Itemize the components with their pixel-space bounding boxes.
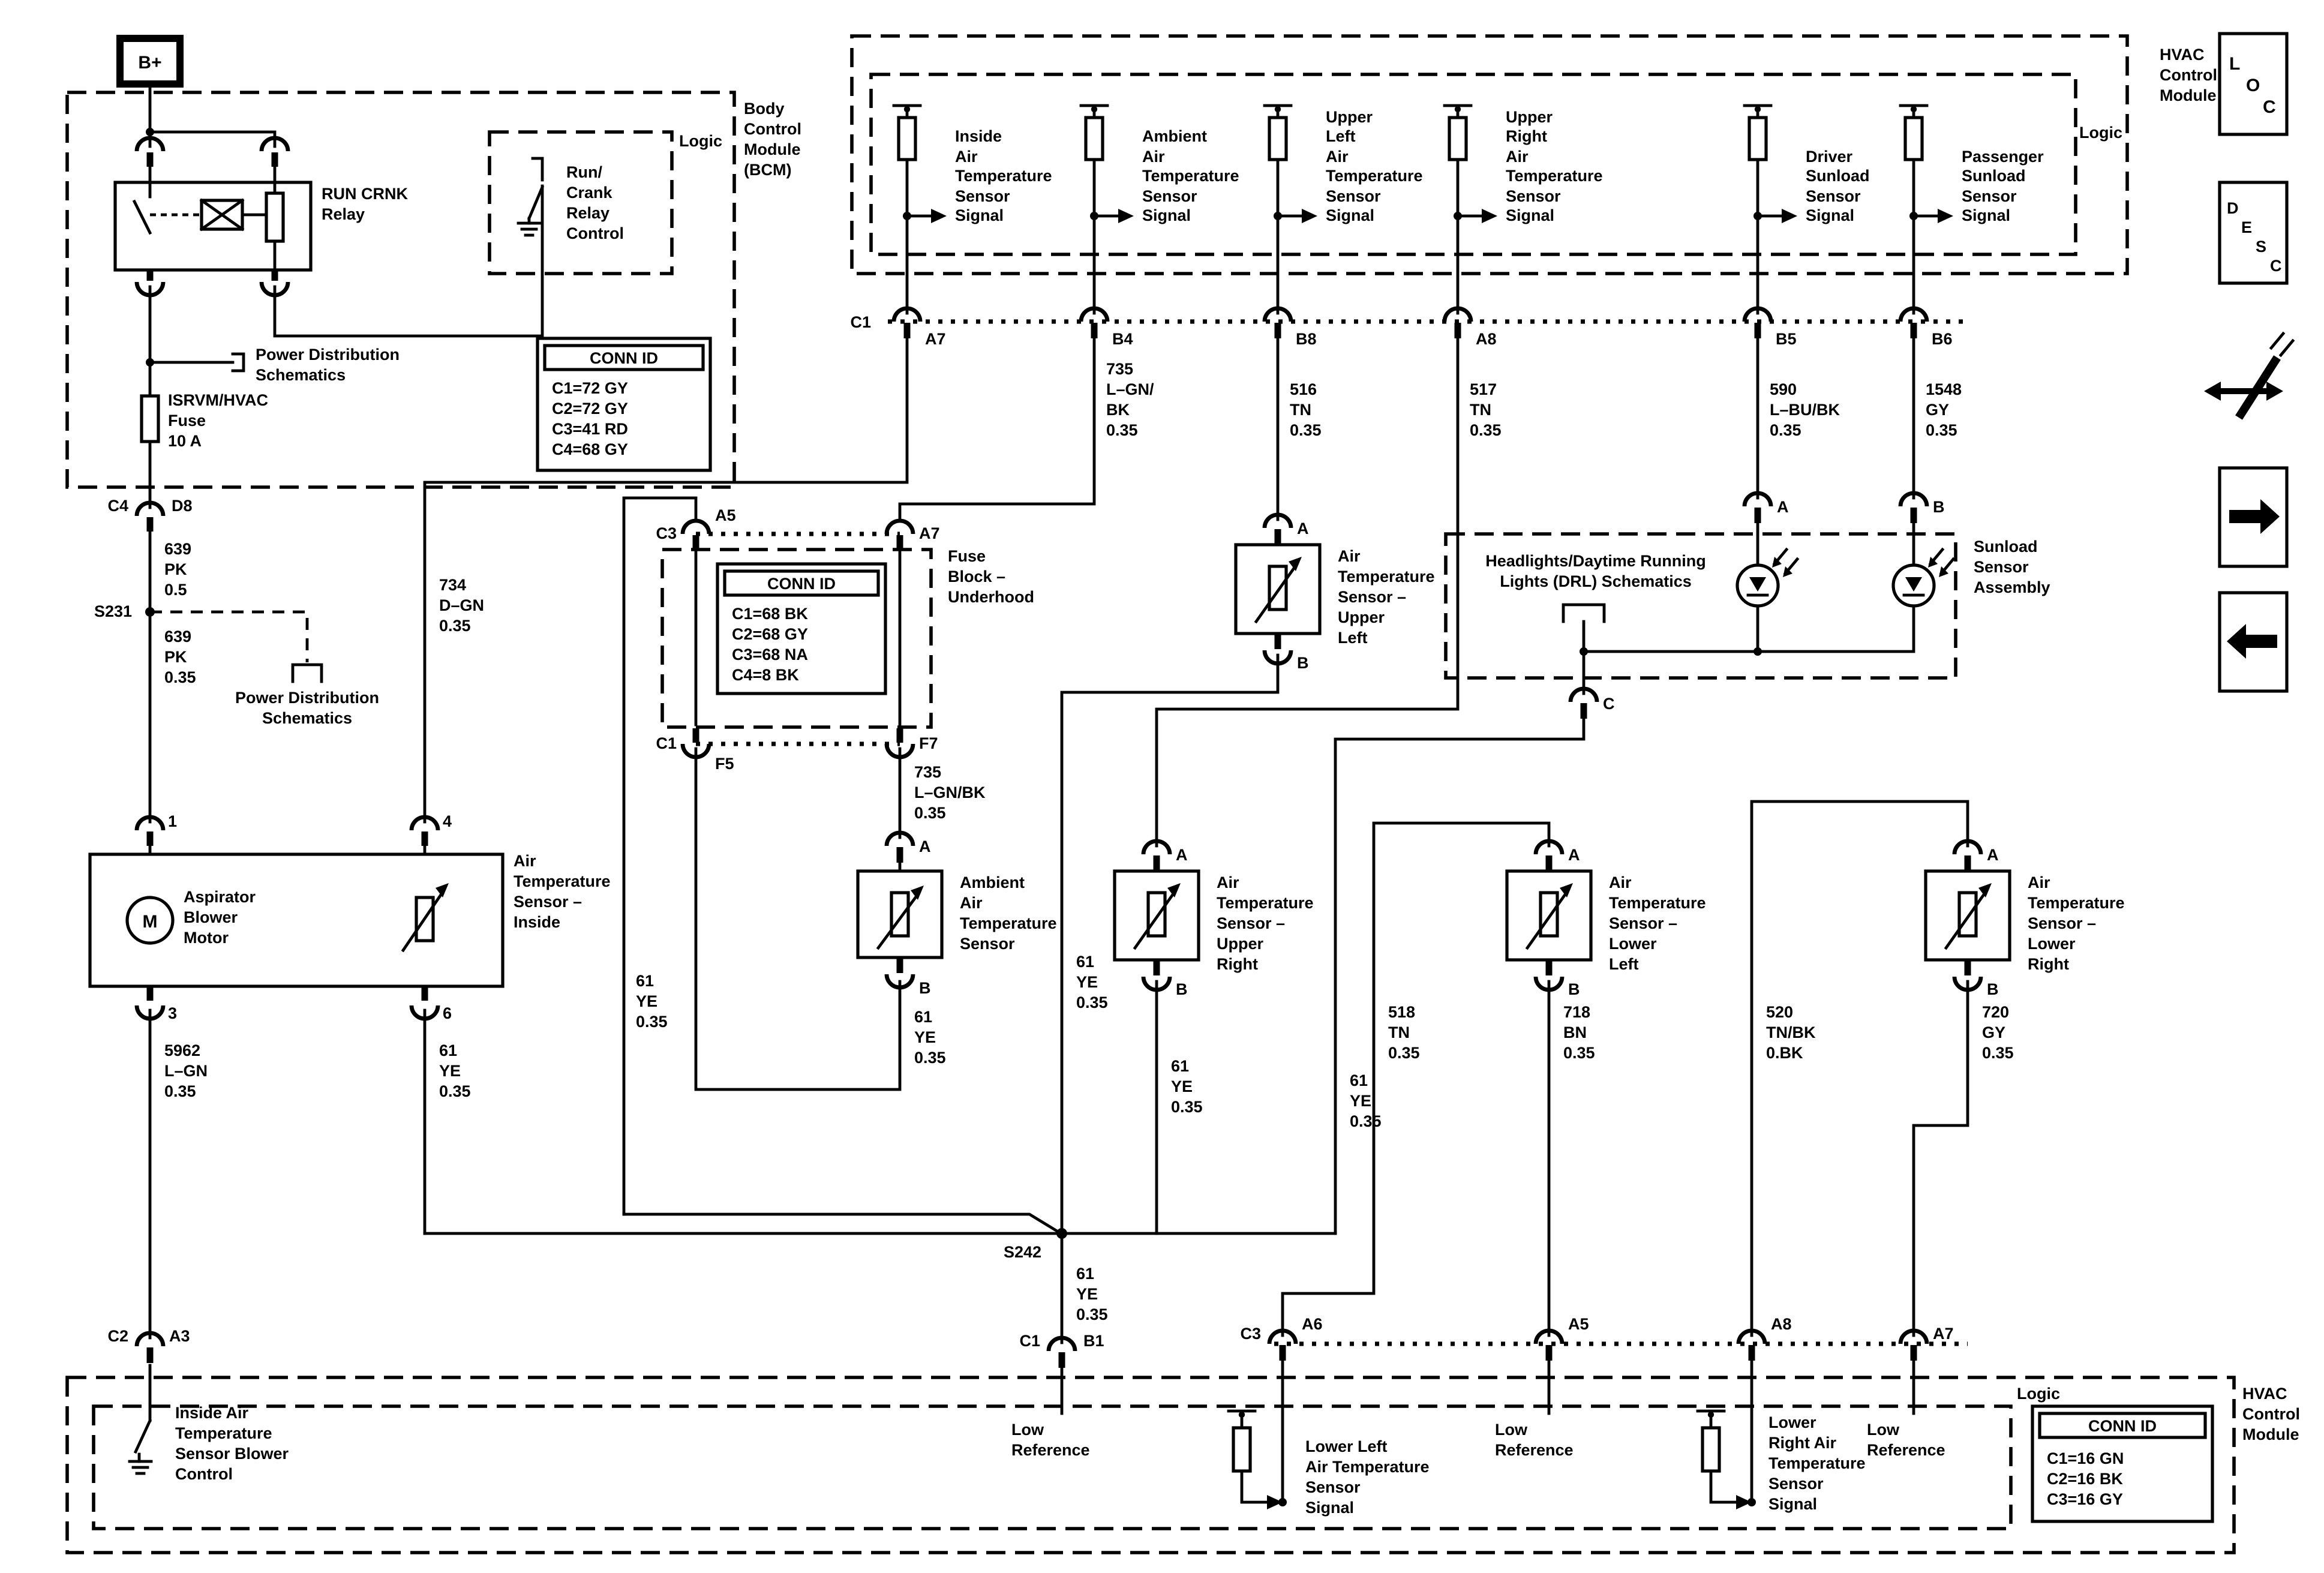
svg-text:E: E: [2241, 218, 2252, 236]
pin-6: 6: [443, 1004, 452, 1022]
left-wires: 639 PK 0.5 S231 Power Distribution Schem…: [94, 532, 379, 822]
pin-c3: C3: [1240, 1325, 1261, 1343]
svg-text:Right Air: Right Air: [1768, 1434, 1836, 1452]
svg-text:Sensor: Sensor: [955, 187, 1010, 205]
svg-text:Temperature: Temperature: [1506, 167, 1603, 185]
top-sensor-labels: Inside Air Temperature Sensor Signal Amb…: [955, 108, 2044, 224]
power-distribution-bracket2-icon: [293, 665, 322, 682]
bottom-logic-label: Logic: [2017, 1385, 2060, 1403]
svg-text:Air: Air: [960, 894, 983, 912]
splice-s242-label: S242: [1004, 1243, 1041, 1261]
relay-name: RUN CRNK: [322, 185, 408, 203]
svg-text:0.35: 0.35: [1563, 1044, 1595, 1062]
pin-c1f: C1: [656, 734, 677, 752]
isrvm-hvac-fuse-icon: [142, 396, 158, 442]
pin-c3: C3: [656, 524, 677, 542]
wire-label-61: 61: [636, 972, 654, 990]
svg-text:C: C: [2263, 97, 2276, 117]
pin-3: 3: [168, 1004, 177, 1022]
bcm-name: (BCM): [744, 161, 791, 179]
svg-text:Air: Air: [1326, 148, 1349, 166]
wire-label-61: 0.35: [636, 1013, 668, 1031]
wire-label-639: 0.5: [164, 581, 187, 599]
low-reference: Reference: [1867, 1441, 1945, 1459]
arrow-left-button[interactable]: [2220, 593, 2287, 691]
svg-text:Ambient: Ambient: [1142, 127, 1207, 145]
pin-b8: B8: [1296, 330, 1317, 348]
wire-label-639b: 0.35: [164, 668, 196, 686]
wire-label-590: 590: [1770, 380, 1797, 398]
wire-label-61: 0.35: [439, 1082, 471, 1100]
wire-label-639: PK: [164, 560, 187, 578]
svg-text:Control: Control: [175, 1465, 233, 1483]
svg-text:Temperature: Temperature: [1768, 1454, 1866, 1472]
wire-label-61: 0.35: [1350, 1112, 1382, 1130]
pin-4: 4: [443, 812, 452, 830]
svg-text:Temperature: Temperature: [1142, 167, 1239, 185]
run-crank-label: Control: [566, 224, 624, 242]
top-module-name: Control: [2160, 66, 2217, 84]
wire-label-639b: 639: [164, 628, 191, 646]
wire-label-61: 61: [1171, 1057, 1189, 1075]
svg-text:Upper: Upper: [1338, 608, 1385, 626]
bcm-conn-id-table: CONN ID C1=72 GY C2=72 GY C3=41 RD C4=68…: [538, 338, 710, 470]
svg-text:Temperature: Temperature: [1338, 568, 1435, 586]
run-crnk-relay-box: [115, 182, 311, 270]
pin-b: B: [1987, 980, 1999, 998]
aspirator-label: Motor: [184, 929, 229, 947]
svg-text:Signal: Signal: [1305, 1499, 1354, 1517]
splice-s242-bus: S242 61 YE 0.35 C1 B1: [425, 1214, 1335, 1368]
svg-text:Air: Air: [1338, 547, 1361, 565]
wire-518: [1283, 823, 1549, 1335]
passenger-photodiode-icon: [1893, 550, 1953, 606]
svg-text:Sensor: Sensor: [1806, 187, 1861, 205]
wire-label-639: 639: [164, 540, 191, 558]
ambient-air-temp-sensor: A B Ambient Air Temperature Sensor 61 YE…: [858, 833, 1057, 1067]
svg-text:C3=68 NA: C3=68 NA: [732, 646, 808, 664]
svg-text:518: 518: [1388, 1003, 1415, 1021]
svg-text:Temperature: Temperature: [955, 167, 1052, 185]
svg-text:Temperature: Temperature: [960, 914, 1057, 932]
wire-label-5962: L–GN: [164, 1062, 208, 1080]
top-sensor-branches: [894, 106, 1953, 313]
svg-text:Sensor: Sensor: [1768, 1475, 1824, 1493]
power-distribution2-label: Schematics: [262, 709, 352, 727]
fuse-block-name: Fuse: [948, 547, 986, 565]
svg-text:Sensor: Sensor: [1142, 187, 1197, 205]
run-crank-label: Relay: [566, 204, 609, 222]
svg-text:Right: Right: [1217, 955, 1258, 973]
air-temp-sensor-upper-right: A B Air Temperature Sensor – Upper Right…: [1115, 340, 1458, 1233]
wire-label-5962: 0.35: [164, 1082, 196, 1100]
arrow-right-button[interactable]: [2220, 468, 2287, 566]
wrench-nav-icon[interactable]: [2204, 334, 2293, 418]
svg-text:C2=68 GY: C2=68 GY: [732, 625, 808, 643]
conn-id-row: C1=72 GY: [552, 379, 628, 397]
top-module-name: Module: [2160, 86, 2217, 104]
fuse-block-name: Underhood: [948, 588, 1034, 606]
pin-b4: B4: [1112, 330, 1133, 348]
wire-label-639b: PK: [164, 648, 187, 666]
fuse-label: ISRVM/HVAC: [168, 391, 268, 409]
svg-text:Sensor –: Sensor –: [1338, 588, 1406, 606]
air-temp-sensor-upper-left: A B Air Temperature Sensor – Upper Left …: [1062, 340, 1435, 1229]
power-distribution2-label: Power Distribution: [235, 689, 379, 707]
air-temp-sensor-lower-left: 518 TN 0.35 A B Air Temperature Sensor –…: [1283, 823, 1706, 1335]
top-module-name: HVAC: [2160, 46, 2205, 64]
svg-text:Temperature: Temperature: [175, 1424, 272, 1442]
svg-text:CONN ID: CONN ID: [767, 575, 836, 593]
svg-text:Temperature: Temperature: [2028, 894, 2125, 912]
svg-text:Right: Right: [2028, 955, 2069, 973]
svg-text:Sensor –: Sensor –: [1609, 914, 1677, 932]
bcm-name: Module: [744, 140, 801, 158]
wire-label-516: TN: [1290, 401, 1311, 419]
wire-label-516: 516: [1290, 380, 1317, 398]
wire-61-a5-path: [624, 498, 696, 1214]
svg-text:BN: BN: [1563, 1023, 1587, 1041]
power-distribution-bracket-icon: [233, 354, 244, 371]
lower-right-signal-circuit: Lower Right Air Temperature Sensor Signa…: [1698, 1362, 1866, 1513]
svg-text:Air: Air: [2028, 873, 2050, 891]
motor-m: M: [143, 912, 158, 932]
drl-bracket-icon: [1563, 605, 1604, 622]
pin-a: A: [1987, 846, 1999, 864]
inside-sensor-label: Inside: [514, 913, 560, 931]
svg-text:Signal: Signal: [955, 206, 1004, 224]
fuse-label: Fuse: [168, 412, 206, 430]
wire-label-61: 61: [1350, 1071, 1368, 1089]
pin-a8: A8: [1476, 330, 1497, 348]
svg-text:0.BK: 0.BK: [1766, 1044, 1803, 1062]
wire-label-61: YE: [439, 1062, 461, 1080]
svg-text:Sunload: Sunload: [1962, 167, 2026, 185]
pin-a8: A8: [1771, 1315, 1792, 1333]
bottom-module-name: Module: [2242, 1425, 2299, 1443]
wire-label-61: YE: [636, 992, 657, 1010]
svg-text:O: O: [2246, 76, 2260, 95]
wire-735-feed: [900, 340, 1094, 521]
svg-text:Air: Air: [955, 148, 978, 166]
pin-label-d8: D8: [172, 497, 193, 515]
svg-text:Inside: Inside: [955, 127, 1002, 145]
wire-label-590: 0.35: [1770, 421, 1801, 439]
svg-text:Sunload: Sunload: [1806, 167, 1870, 185]
wire-label-735: 0.35: [1106, 421, 1138, 439]
wire-label-517: TN: [1470, 401, 1491, 419]
svg-text:C: C: [2270, 257, 2282, 275]
svg-text:TN: TN: [1388, 1023, 1410, 1041]
conn-id-header: CONN ID: [590, 349, 658, 367]
pin-c1: C1: [1019, 1332, 1040, 1350]
svg-text:520: 520: [1766, 1003, 1793, 1021]
inside-air-temp-sensor-icon: [403, 883, 449, 950]
wire-label-61: 0.35: [1076, 993, 1108, 1011]
svg-text:Air: Air: [1217, 873, 1239, 891]
lower-left-signal-circuit: Lower Left Air Temperature Sensor Signal: [1229, 1362, 1430, 1517]
svg-text:Air Temperature: Air Temperature: [1305, 1458, 1430, 1476]
wire-label-61: 61: [914, 1008, 932, 1026]
low-reference: Low: [1867, 1421, 1900, 1439]
pin-a7b: A7: [1933, 1325, 1954, 1343]
wire-label-61: 0.35: [1076, 1305, 1108, 1323]
sunload-sensor-assembly: A B Headlights/Daytime Running Lights (D…: [1335, 340, 2050, 1233]
svg-text:Lower: Lower: [2028, 935, 2076, 953]
bcm-section: B+ Body Control Module (BCM) Logic RUN C…: [67, 38, 801, 532]
svg-text:Lower Left: Lower Left: [1305, 1437, 1388, 1455]
svg-text:Signal: Signal: [1962, 206, 2010, 224]
relay-name: Relay: [322, 205, 365, 223]
conn-id-row: C3=41 RD: [552, 420, 628, 438]
wire-label-1548: 1548: [1926, 380, 1962, 398]
power-distribution-label: Schematics: [256, 366, 346, 384]
svg-text:Temperature: Temperature: [1217, 894, 1314, 912]
bottom-module-name: Control: [2242, 1405, 2300, 1423]
inside-sensor-label: Air: [514, 852, 536, 870]
svg-text:Right: Right: [1506, 127, 1547, 145]
svg-text:TN/BK: TN/BK: [1766, 1023, 1816, 1041]
bcm-dashed-box: [67, 92, 734, 487]
svg-text:L: L: [2229, 54, 2240, 74]
svg-text:Signal: Signal: [1506, 206, 1554, 224]
pin-a: A: [1568, 846, 1580, 864]
sunload-name: Sensor: [1974, 558, 2029, 576]
svg-text:C3=16 GY: C3=16 GY: [2047, 1490, 2123, 1508]
wire-label-735: BK: [1106, 401, 1130, 419]
wire-label-735b: L–GN/BK: [914, 784, 986, 801]
svg-text:Sensor Blower: Sensor Blower: [175, 1445, 289, 1463]
bcm-name: Body: [744, 100, 785, 118]
svg-text:Signal: Signal: [1142, 206, 1191, 224]
drl-label: Headlights/Daytime Running: [1485, 552, 1706, 570]
air-temp-sensor-lower-right: 520 TN/BK 0.BK A B Air Temperature Senso…: [1752, 801, 2125, 1335]
svg-text:Inside Air: Inside Air: [175, 1404, 249, 1422]
pin-a6: A6: [1302, 1315, 1323, 1333]
wire-label-61: 61: [1076, 1265, 1094, 1283]
loc-button[interactable]: L O C: [2220, 34, 2287, 134]
bottom-logic-box: [94, 1406, 2011, 1529]
inside-sensor-label: Temperature: [514, 872, 611, 890]
top-logic-label: Logic: [2079, 124, 2122, 142]
svg-text:Left: Left: [1338, 629, 1368, 647]
aspirator-label: Blower: [184, 908, 238, 926]
svg-text:S: S: [2256, 238, 2266, 256]
svg-text:Driver: Driver: [1806, 148, 1853, 166]
svg-text:Sensor: Sensor: [1962, 187, 2017, 205]
low-reference: Reference: [1011, 1441, 1090, 1459]
pin-f5: F5: [715, 755, 734, 773]
bcm-logic-label: Logic: [679, 132, 722, 150]
svg-text:0.35: 0.35: [1388, 1044, 1420, 1062]
splice-s231-label: S231: [94, 602, 132, 620]
svg-text:0.35: 0.35: [1982, 1044, 2014, 1062]
pin-b: B: [1297, 654, 1309, 672]
wire-label-734: D–GN: [439, 596, 484, 614]
run-crank-relay-control-icon: [518, 158, 542, 235]
top-hvac-module: Logic HVAC Control Module Inside Air Tem…: [850, 36, 2217, 439]
pin-f7: F7: [919, 734, 938, 752]
wire-label-735: L–GN/: [1106, 380, 1154, 398]
wire-61-f5-to-ambient-b: [696, 749, 900, 1089]
bottom-conn-id-table: CONN ID C1=16 GN C2=16 BK C3=16 GY: [2032, 1406, 2212, 1521]
run-crank-label: Crank: [566, 184, 613, 202]
b-plus-label: B+: [138, 53, 161, 73]
svg-text:Air: Air: [1609, 873, 1632, 891]
fuse-label: 10 A: [168, 432, 202, 450]
pin-a3: A3: [169, 1327, 190, 1345]
bcm-name: Control: [744, 120, 801, 138]
wire-label-734: 734: [439, 576, 466, 594]
svg-text:Sensor: Sensor: [960, 935, 1015, 953]
top-module-box: [852, 36, 2127, 274]
relay-resistor-icon: [266, 193, 283, 241]
sunload-name: Sunload: [1974, 538, 2038, 556]
wire-label-61: 0.35: [914, 1049, 946, 1067]
wire-label-1548: 0.35: [1926, 421, 1957, 439]
inside-sensor-label: Sensor –: [514, 893, 582, 911]
pin-c2: C2: [107, 1327, 128, 1345]
conn-id-row: C4=68 GY: [552, 440, 628, 458]
wire-label-517: 0.35: [1470, 421, 1502, 439]
wire-label-61: 61: [439, 1041, 457, 1059]
wire-label-61: YE: [1350, 1092, 1371, 1110]
svg-text:GY: GY: [1982, 1023, 2005, 1041]
pin-b: B: [1176, 980, 1188, 998]
conn-id-row: C2=72 GY: [552, 400, 628, 418]
power-distribution-label: Power Distribution: [256, 346, 400, 364]
pin-c: C: [1603, 695, 1615, 713]
pin-a: A: [1777, 498, 1789, 516]
wire-label-735b: 0.35: [914, 804, 946, 822]
wire-label-61: YE: [1076, 973, 1098, 991]
aspirator-blower-motor: 1 4 M Aspirator Blower Motor Air Tempera…: [90, 812, 611, 1338]
svg-text:D: D: [2227, 199, 2239, 217]
pin-a7: A7: [925, 330, 946, 348]
pin-a7f: A7: [919, 524, 940, 542]
svg-text:C1=68 BK: C1=68 BK: [732, 605, 808, 623]
bottom-module-box: [67, 1377, 2234, 1553]
svg-text:718: 718: [1563, 1003, 1590, 1021]
wire-720: [1914, 981, 1968, 1335]
svg-text:Upper: Upper: [1506, 108, 1553, 126]
svg-text:Ambient: Ambient: [960, 873, 1025, 891]
svg-text:C2=16 BK: C2=16 BK: [2047, 1470, 2123, 1488]
svg-text:Air: Air: [1142, 148, 1165, 166]
run-crank-label: Run/: [566, 163, 602, 181]
wire-label-61: YE: [914, 1028, 936, 1046]
svg-text:C4=8 BK: C4=8 BK: [732, 666, 799, 684]
pin-a5: A5: [1568, 1315, 1589, 1333]
connector-c4-d8: [137, 503, 163, 516]
pin-1: 1: [168, 812, 177, 830]
fuse-conn-id-table: CONN ID C1=68 BK C2=68 GY C3=68 NA C4=8 …: [717, 564, 885, 694]
pin-b: B: [919, 979, 931, 997]
svg-text:Sensor –: Sensor –: [1217, 914, 1285, 932]
svg-text:Temperature: Temperature: [1609, 894, 1706, 912]
pin-a: A: [1176, 846, 1188, 864]
svg-text:CONN ID: CONN ID: [2088, 1417, 2157, 1435]
svg-text:Sensor –: Sensor –: [2028, 914, 2096, 932]
svg-text:720: 720: [1982, 1003, 2009, 1021]
bottom-hvac-module: C3 A6 A5 A8 A7 Logic HVAC Control Module…: [67, 1315, 2300, 1553]
pin-a: A: [1297, 520, 1309, 538]
drl-label: Lights (DRL) Schematics: [1500, 572, 1692, 590]
svg-text:Signal: Signal: [1326, 206, 1374, 224]
svg-text:Upper: Upper: [1217, 935, 1264, 953]
svg-text:Left: Left: [1609, 955, 1639, 973]
pin-b: B: [1568, 980, 1580, 998]
svg-text:Sensor: Sensor: [1305, 1478, 1361, 1496]
low-reference: Low: [1495, 1421, 1528, 1439]
wire-label-516: 0.35: [1290, 421, 1322, 439]
sunload-name: Assembly: [1974, 578, 2050, 596]
svg-text:Left: Left: [1326, 127, 1356, 145]
wire-label-61: YE: [1171, 1077, 1193, 1095]
low-reference: Low: [1011, 1421, 1044, 1439]
wire-label-61: 61: [1076, 953, 1094, 971]
bottom-module-name: HVAC: [2242, 1385, 2287, 1403]
svg-text:Temperature: Temperature: [1326, 167, 1423, 185]
svg-text:Signal: Signal: [1806, 206, 1854, 224]
svg-text:Passenger: Passenger: [1962, 148, 2044, 166]
bcm-logic-box: [490, 132, 672, 274]
wire-label-735: 735: [1106, 360, 1133, 378]
top-connector-row: C1 A7 B4 B8 A8 B5 B6: [850, 308, 1968, 348]
svg-text:Lower: Lower: [1609, 935, 1657, 953]
desc-button[interactable]: D E S C: [2220, 182, 2287, 283]
wire-label-517: 517: [1470, 380, 1497, 398]
pin-b5: B5: [1776, 330, 1797, 348]
wire-label-590: L–BU/BK: [1770, 401, 1840, 419]
pin-b1: B1: [1083, 1332, 1104, 1350]
row-connector-c1: C1: [850, 313, 871, 331]
wire-label-61: YE: [1076, 1285, 1098, 1303]
pin-b: B: [1933, 498, 1945, 516]
svg-text:C1=16 GN: C1=16 GN: [2047, 1449, 2124, 1467]
pin-a5: A5: [715, 506, 736, 524]
svg-text:Sensor: Sensor: [1326, 187, 1381, 205]
pin-b6: B6: [1932, 330, 1953, 348]
wiring-diagram: B+ Body Control Module (BCM) Logic RUN C…: [0, 0, 2324, 1573]
svg-text:Upper: Upper: [1326, 108, 1373, 126]
wire-label-734: 0.35: [439, 617, 471, 635]
pin-label-c4: C4: [107, 497, 128, 515]
svg-text:Signal: Signal: [1768, 1495, 1817, 1513]
fuse-block-name: Block –: [948, 568, 1005, 586]
wire-label-5962: 5962: [164, 1041, 200, 1059]
svg-text:Lower: Lower: [1768, 1413, 1816, 1431]
aspirator-label: Aspirator: [184, 888, 256, 906]
wire-label-735b: 735: [914, 763, 941, 781]
wire-520: [1752, 801, 1968, 1335]
wire-label-1548: GY: [1926, 401, 1949, 419]
svg-text:Air: Air: [1506, 148, 1529, 166]
pin-a: A: [919, 837, 931, 855]
nav-icons: L O C D E S C: [2204, 34, 2293, 691]
svg-text:Sensor: Sensor: [1506, 187, 1561, 205]
top-module-logic-box: [871, 74, 2076, 254]
wire-label-61: 0.35: [1171, 1098, 1203, 1116]
low-reference: Reference: [1495, 1441, 1574, 1459]
driver-photodiode-icon: [1737, 550, 1797, 606]
